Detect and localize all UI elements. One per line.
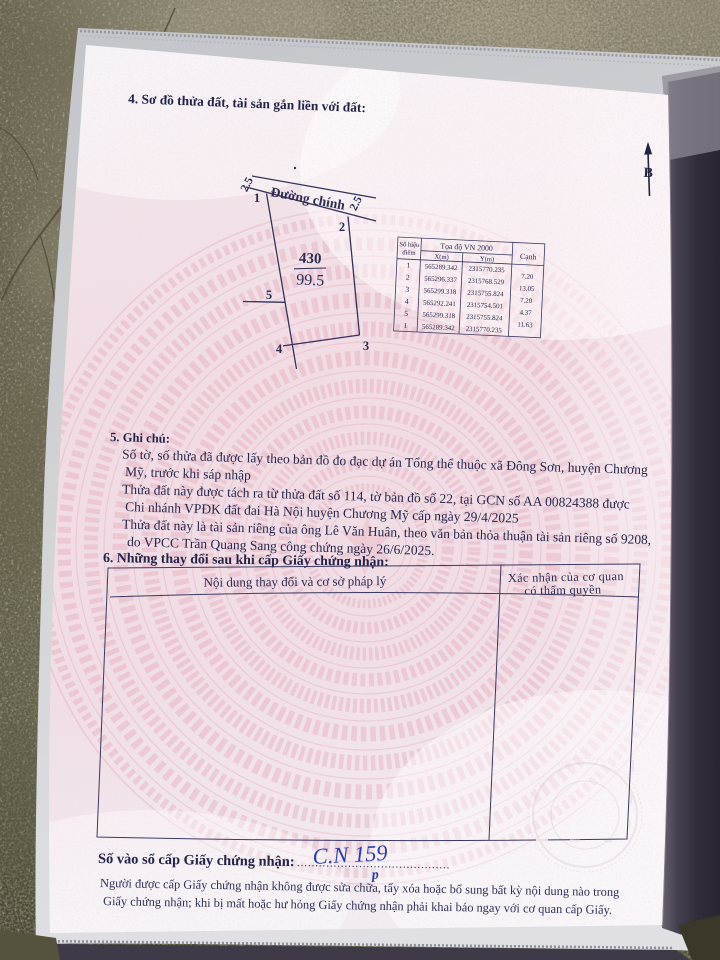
svg-text:C.N 159: C.N 159 [312,840,388,869]
svg-text:Nội dung thay đổi và cơ sở phá: Nội dung thay đổi và cơ sở pháp lý [204,573,387,590]
svg-text:430: 430 [299,251,322,268]
svg-text:B: B [643,166,653,181]
svg-text:Cạnh: Cạnh [520,252,537,262]
svg-text:13.05: 13.05 [519,285,535,293]
svg-text:5: 5 [404,309,408,318]
svg-text:1: 1 [403,321,407,330]
svg-text:có thẩm quyền: có thẩm quyền [524,582,601,597]
svg-text:Số hiệu: Số hiệu [399,241,420,249]
svg-text:điểm: điểm [402,249,416,257]
svg-text:4.37: 4.37 [519,310,532,318]
svg-text:2: 2 [406,273,410,282]
svg-text:1: 1 [406,261,410,270]
svg-text:4: 4 [405,297,409,306]
svg-text:X(m): X(m) [434,254,449,262]
svg-text:5. Ghi chú:: 5. Ghi chú: [110,430,170,446]
svg-text:7.20: 7.20 [521,273,534,281]
svg-text:5: 5 [266,288,272,302]
svg-text:Số vào sổ cấp Giấy chứng nhận:: Số vào sổ cấp Giấy chứng nhận: [98,851,295,870]
svg-text:3: 3 [405,285,409,294]
svg-text:1: 1 [254,191,260,205]
svg-text:99.5: 99.5 [296,271,325,289]
svg-text:Y(m): Y(m) [480,256,495,264]
svg-text:3: 3 [363,339,369,353]
svg-text:2: 2 [339,220,345,234]
svg-text:7.20: 7.20 [520,297,533,305]
svg-text:11.63: 11.63 [517,322,533,330]
svg-text:4: 4 [276,342,283,356]
